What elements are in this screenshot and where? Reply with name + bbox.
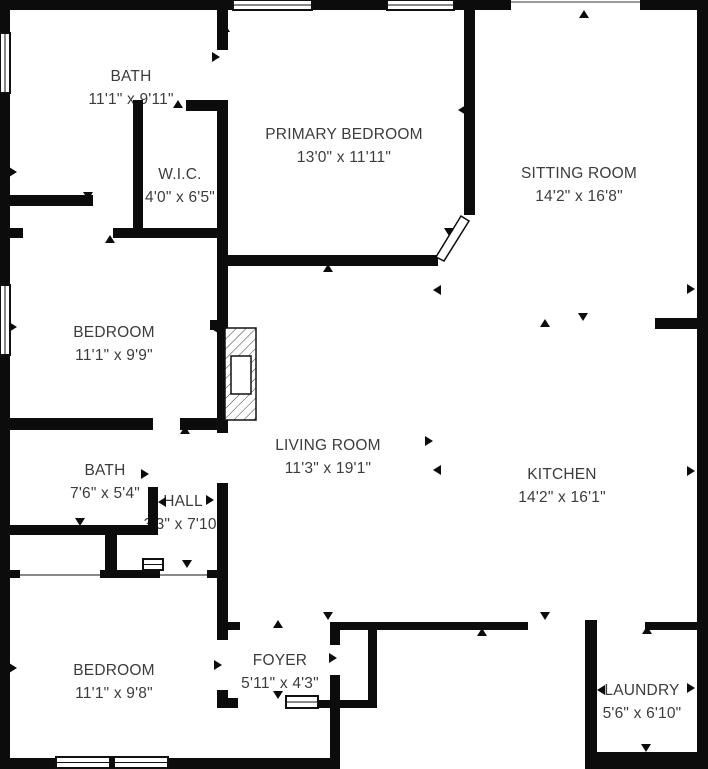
room-label-primary-bedroom: PRIMARY BEDROOM13'0" x 11'11"	[265, 123, 422, 169]
room-dimensions: 5'6" x 6'10"	[603, 702, 682, 725]
room-label-wic: W.I.C.4'0" x 6'5"	[145, 163, 215, 209]
room-label-sitting-room: SITTING ROOM14'2" x 16'8"	[521, 162, 637, 208]
room-labels-layer: BATH11'1" x 9'11"W.I.C.4'0" x 6'5"PRIMAR…	[0, 0, 708, 769]
room-name: FOYER	[241, 649, 319, 672]
room-label-bedroom-bottom: BEDROOM11'1" x 9'8"	[73, 659, 155, 705]
room-label-bedroom-middle: BEDROOM11'1" x 9'9"	[73, 321, 155, 367]
room-dimensions: 11'1" x 9'9"	[73, 344, 155, 367]
room-dimensions: 11'3" x 19'1"	[275, 457, 381, 480]
room-label-bath-hall: BATH7'6" x 5'4"	[70, 459, 140, 505]
room-name: LIVING ROOM	[275, 434, 381, 457]
room-name: HALL	[144, 490, 223, 513]
room-name: KITCHEN	[518, 463, 606, 486]
room-name: LAUNDRY	[603, 679, 682, 702]
room-name: W.I.C.	[145, 163, 215, 186]
room-dimensions: 14'2" x 16'8"	[521, 185, 637, 208]
room-label-bath-primary: BATH11'1" x 9'11"	[88, 65, 173, 111]
room-name: BATH	[70, 459, 140, 482]
room-dimensions: 14'2" x 16'1"	[518, 486, 606, 509]
room-dimensions: 13'0" x 11'11"	[265, 146, 422, 169]
room-dimensions: 4'0" x 6'5"	[145, 186, 215, 209]
room-label-laundry: LAUNDRY5'6" x 6'10"	[603, 679, 682, 725]
room-label-living-room: LIVING ROOM11'3" x 19'1"	[275, 434, 381, 480]
room-label-kitchen: KITCHEN14'2" x 16'1"	[518, 463, 606, 509]
room-dimensions: 11'1" x 9'8"	[73, 682, 155, 705]
room-name: BEDROOM	[73, 659, 155, 682]
room-label-hall: HALL3'3" x 7'10"	[144, 490, 223, 536]
room-name: SITTING ROOM	[521, 162, 637, 185]
room-dimensions: 7'6" x 5'4"	[70, 482, 140, 505]
room-name: BATH	[88, 65, 173, 88]
room-label-foyer: FOYER5'11" x 4'3"	[241, 649, 319, 695]
room-name: PRIMARY BEDROOM	[265, 123, 422, 146]
floorplan: BATH11'1" x 9'11"W.I.C.4'0" x 6'5"PRIMAR…	[0, 0, 708, 769]
room-dimensions: 3'3" x 7'10"	[144, 513, 223, 536]
room-dimensions: 11'1" x 9'11"	[88, 88, 173, 111]
room-dimensions: 5'11" x 4'3"	[241, 672, 319, 695]
room-name: BEDROOM	[73, 321, 155, 344]
